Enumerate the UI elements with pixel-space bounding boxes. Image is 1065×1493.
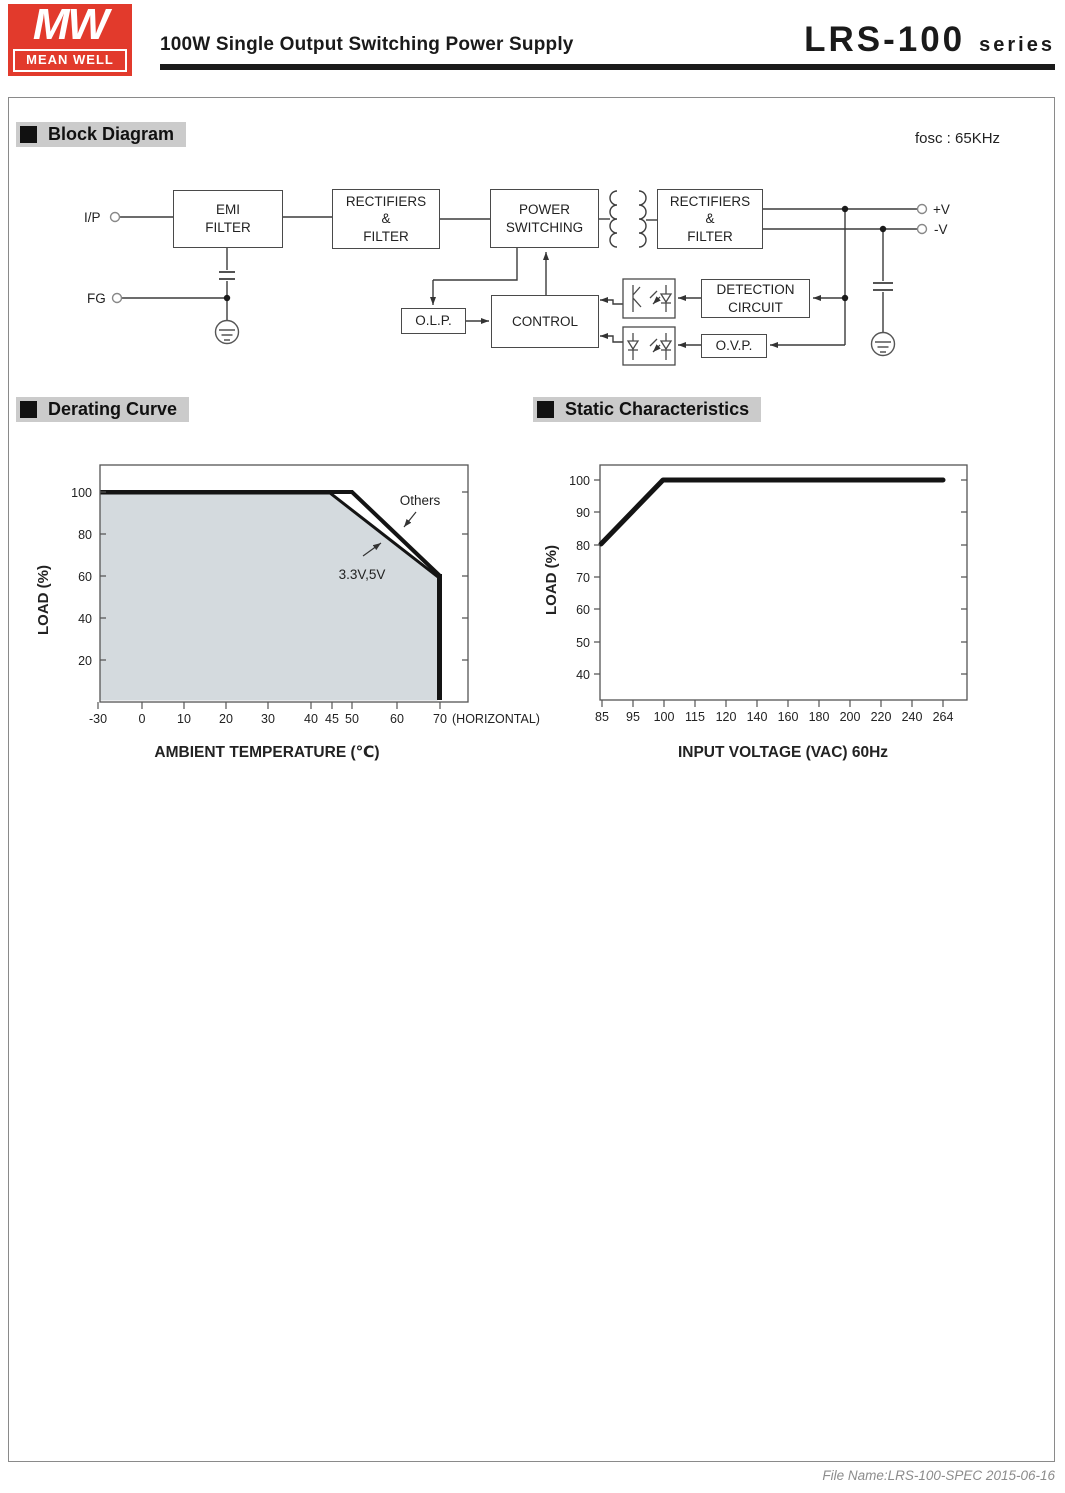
x-axis-note: (HORIZONTAL) [452, 712, 540, 726]
block-label-line: RECTIFIERS [670, 193, 750, 211]
block-label-line: & [705, 210, 714, 228]
section-header-static-characteristics: Static Characteristics [533, 397, 761, 422]
fosc-note: fosc : 65KHz [915, 130, 1000, 147]
block-rectifiers-filter-input: RECTIFIERS & FILTER [332, 189, 440, 249]
terminal-label-vplus: +V [933, 202, 950, 217]
block-label-line: O.L.P. [415, 312, 452, 330]
block-label-line: O.V.P. [716, 337, 753, 355]
section-bullet-icon [20, 401, 37, 418]
y-axis-title: LOAD (%) [543, 545, 560, 615]
block-power-switching: POWER SWITCHING [490, 189, 599, 248]
x-tick-label: 45 [325, 712, 339, 726]
logo-mw-monogram: MW [8, 0, 132, 50]
y-tick-label: 100 [71, 486, 92, 500]
block-diagram-canvas [0, 150, 1065, 390]
block-label-line: CONTROL [512, 313, 578, 331]
derating-x-ticks [98, 702, 440, 709]
x-tick-label: 60 [390, 712, 404, 726]
block-label-line: FILTER [687, 228, 733, 246]
terminal-label-ip: I/P [84, 210, 101, 225]
x-tick-label: 30 [261, 712, 275, 726]
header-rule [160, 64, 1055, 70]
block-rectifiers-filter-output: RECTIFIERS & FILTER [657, 189, 763, 249]
meanwell-logo: MW MEAN WELL [8, 4, 132, 76]
y-tick-label: 80 [576, 539, 590, 553]
x-tick-label: 160 [778, 710, 799, 724]
y-tick-label: 60 [78, 570, 92, 584]
file-name-note: File Name:LRS-100-SPEC 2015-06-16 [822, 1468, 1055, 1483]
section-bullet-icon [537, 401, 554, 418]
datasheet-page: MW MEAN WELL 100W Single Output Switchin… [0, 0, 1065, 1493]
terminal-circle-fg [113, 294, 122, 303]
block-label-line: SWITCHING [506, 219, 583, 237]
x-tick-label: -30 [89, 712, 107, 726]
terminal-label-fg: FG [87, 291, 106, 306]
block-label-line: DETECTION [716, 281, 794, 299]
derating-curve-chart: 100 80 60 40 20 -30 0 10 20 30 40 45 50 … [0, 440, 540, 770]
x-tick-label: 85 [595, 710, 609, 724]
x-tick-label: 40 [304, 712, 318, 726]
transformer-icon [610, 191, 646, 247]
x-tick-label: 240 [902, 710, 923, 724]
series-label-3v3-5v: 3.3V,5V [339, 567, 386, 582]
product-name: LRS-100 [804, 20, 965, 60]
optocoupler-top-icon [623, 279, 675, 318]
block-label-line: FILTER [363, 228, 409, 246]
x-tick-label: 50 [345, 712, 359, 726]
terminal-circle-vminus [918, 225, 927, 234]
x-tick-label: 20 [219, 712, 233, 726]
page-title: 100W Single Output Switching Power Suppl… [160, 34, 574, 56]
y-tick-label: 20 [78, 654, 92, 668]
x-tick-label: 264 [933, 710, 954, 724]
x-tick-label: 120 [716, 710, 737, 724]
series-label-others: Others [400, 493, 441, 508]
x-tick-label: 200 [840, 710, 861, 724]
block-label-line: & [381, 210, 390, 228]
x-axis-title: INPUT VOLTAGE (VAC) 60Hz [678, 744, 888, 761]
x-tick-label: 180 [809, 710, 830, 724]
y-tick-label: 60 [576, 603, 590, 617]
terminal-circle-vplus [918, 205, 927, 214]
x-tick-label: 115 [685, 710, 705, 724]
x-tick-label: 95 [626, 710, 640, 724]
y-tick-label: 90 [576, 506, 590, 520]
capacitor-icon-output [873, 283, 893, 290]
block-detection-circuit: DETECTION CIRCUIT [701, 279, 810, 318]
y-tick-label: 40 [78, 612, 92, 626]
block-emi-filter: EMI FILTER [173, 190, 283, 248]
x-tick-label: 10 [177, 712, 191, 726]
static-x-ticks [602, 700, 943, 707]
y-tick-label: 40 [576, 668, 590, 682]
optocoupler-bottom-icon [623, 327, 675, 365]
capacitor-icon-input [219, 272, 235, 279]
y-tick-label: 100 [569, 474, 590, 488]
block-control: CONTROL [491, 295, 599, 348]
y-tick-label: 50 [576, 636, 590, 650]
block-label-line: POWER [519, 201, 570, 219]
x-tick-label: 70 [433, 712, 447, 726]
y-axis-title: LOAD (%) [35, 565, 52, 635]
static-characteristics-chart: 100 90 80 70 60 50 40 85 95 100 115 120 … [540, 440, 1065, 770]
x-axis-title: AMBIENT TEMPERATURE (℃) [154, 744, 379, 761]
static-plot-border [600, 465, 967, 700]
x-tick-label: 140 [747, 710, 768, 724]
ground-icon-input [216, 321, 239, 344]
product-suffix: series [979, 34, 1055, 57]
block-olp: O.L.P. [401, 308, 466, 334]
terminal-circle-ip [111, 213, 120, 222]
terminal-label-vminus: -V [934, 222, 948, 237]
block-label-line: FILTER [205, 219, 251, 237]
block-label-line: RECTIFIERS [346, 193, 426, 211]
x-tick-label: 0 [139, 712, 146, 726]
block-ovp: O.V.P. [701, 334, 767, 358]
section-header-block-diagram: Block Diagram [16, 122, 186, 147]
x-tick-label: 100 [654, 710, 675, 724]
block-label-line: EMI [216, 201, 240, 219]
logo-brand-name: MEAN WELL [13, 49, 127, 72]
ground-icon-output [872, 333, 895, 356]
x-tick-label: 220 [871, 710, 892, 724]
y-tick-label: 70 [576, 571, 590, 585]
section-bullet-icon [20, 126, 37, 143]
section-title: Derating Curve [48, 399, 177, 420]
section-title: Static Characteristics [565, 399, 749, 420]
section-header-derating-curve: Derating Curve [16, 397, 189, 422]
block-label-line: CIRCUIT [728, 299, 783, 317]
section-title: Block Diagram [48, 124, 174, 145]
y-tick-label: 80 [78, 528, 92, 542]
product-series-title: LRS-100 series [804, 20, 1055, 60]
